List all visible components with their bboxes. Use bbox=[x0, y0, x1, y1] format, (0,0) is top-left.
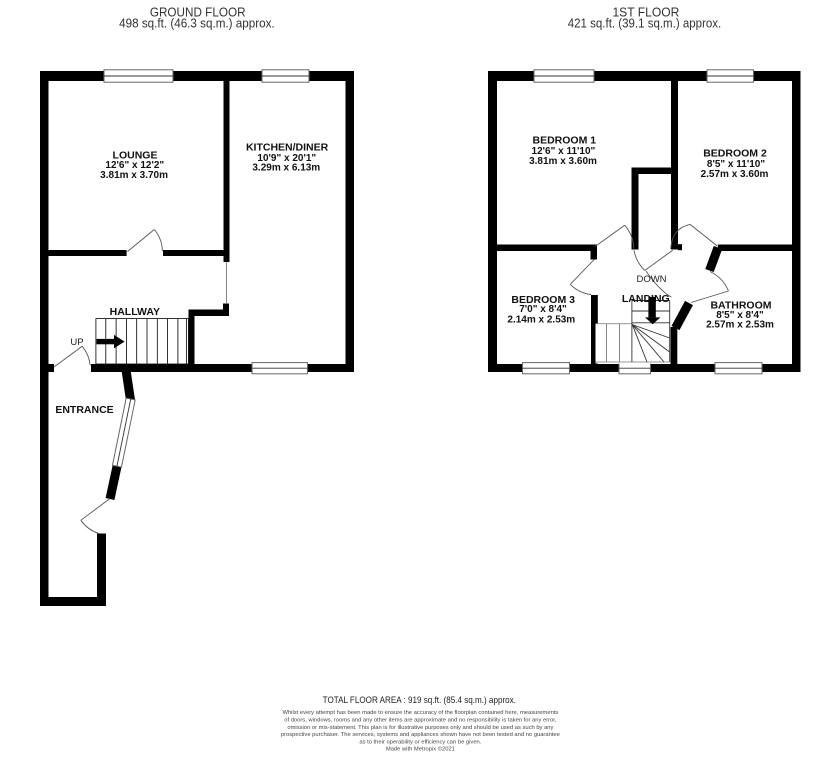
svg-text:omission or mis-statement. Thi: omission or mis-statement. This plan is … bbox=[287, 725, 553, 731]
svg-text:Whilst every attempt has been: Whilst every attempt has been made to en… bbox=[282, 710, 558, 716]
svg-text:2.57m x 2.53m: 2.57m x 2.53m bbox=[706, 319, 774, 330]
svg-text:7'0" x 8'4": 7'0" x 8'4" bbox=[519, 304, 567, 315]
svg-text:of doors, windows, rooms and a: of doors, windows, rooms and any other i… bbox=[284, 718, 557, 724]
svg-text:498 sq.ft. (46.3 sq.m.) approx: 498 sq.ft. (46.3 sq.m.) approx. bbox=[119, 15, 275, 30]
svg-text:as to their operability or eff: as to their operability or efficiency ca… bbox=[359, 739, 481, 745]
svg-text:2.57m x 3.60m: 2.57m x 3.60m bbox=[701, 169, 769, 180]
svg-text:HALLWAY: HALLWAY bbox=[110, 306, 160, 318]
svg-text:ENTRANCE: ENTRANCE bbox=[55, 404, 113, 416]
svg-text:LANDING: LANDING bbox=[622, 293, 670, 305]
svg-text:3.81m x 3.70m: 3.81m x 3.70m bbox=[100, 170, 168, 181]
svg-text:3.81m x 3.60m: 3.81m x 3.60m bbox=[529, 156, 597, 167]
svg-text:DOWN: DOWN bbox=[636, 274, 666, 285]
svg-text:TOTAL FLOOR AREA : 919 sq.ft.: TOTAL FLOOR AREA : 919 sq.ft. (85.4 sq.m… bbox=[323, 695, 516, 705]
svg-text:3.29m x 6.13m: 3.29m x 6.13m bbox=[252, 163, 320, 174]
svg-text:KITCHEN/DINER: KITCHEN/DINER bbox=[246, 142, 329, 154]
svg-text:Made with Metropix ©2021: Made with Metropix ©2021 bbox=[386, 746, 455, 753]
svg-text:UP: UP bbox=[70, 337, 83, 348]
svg-text:2.14m x 2.53m: 2.14m x 2.53m bbox=[507, 315, 575, 326]
svg-text:421 sq.ft. (39.1 sq.m.) approx: 421 sq.ft. (39.1 sq.m.) approx. bbox=[568, 15, 722, 30]
svg-text:BEDROOM 2: BEDROOM 2 bbox=[703, 148, 767, 160]
svg-text:prospective purchaser. The ser: prospective purchaser. The services, sys… bbox=[281, 732, 560, 738]
